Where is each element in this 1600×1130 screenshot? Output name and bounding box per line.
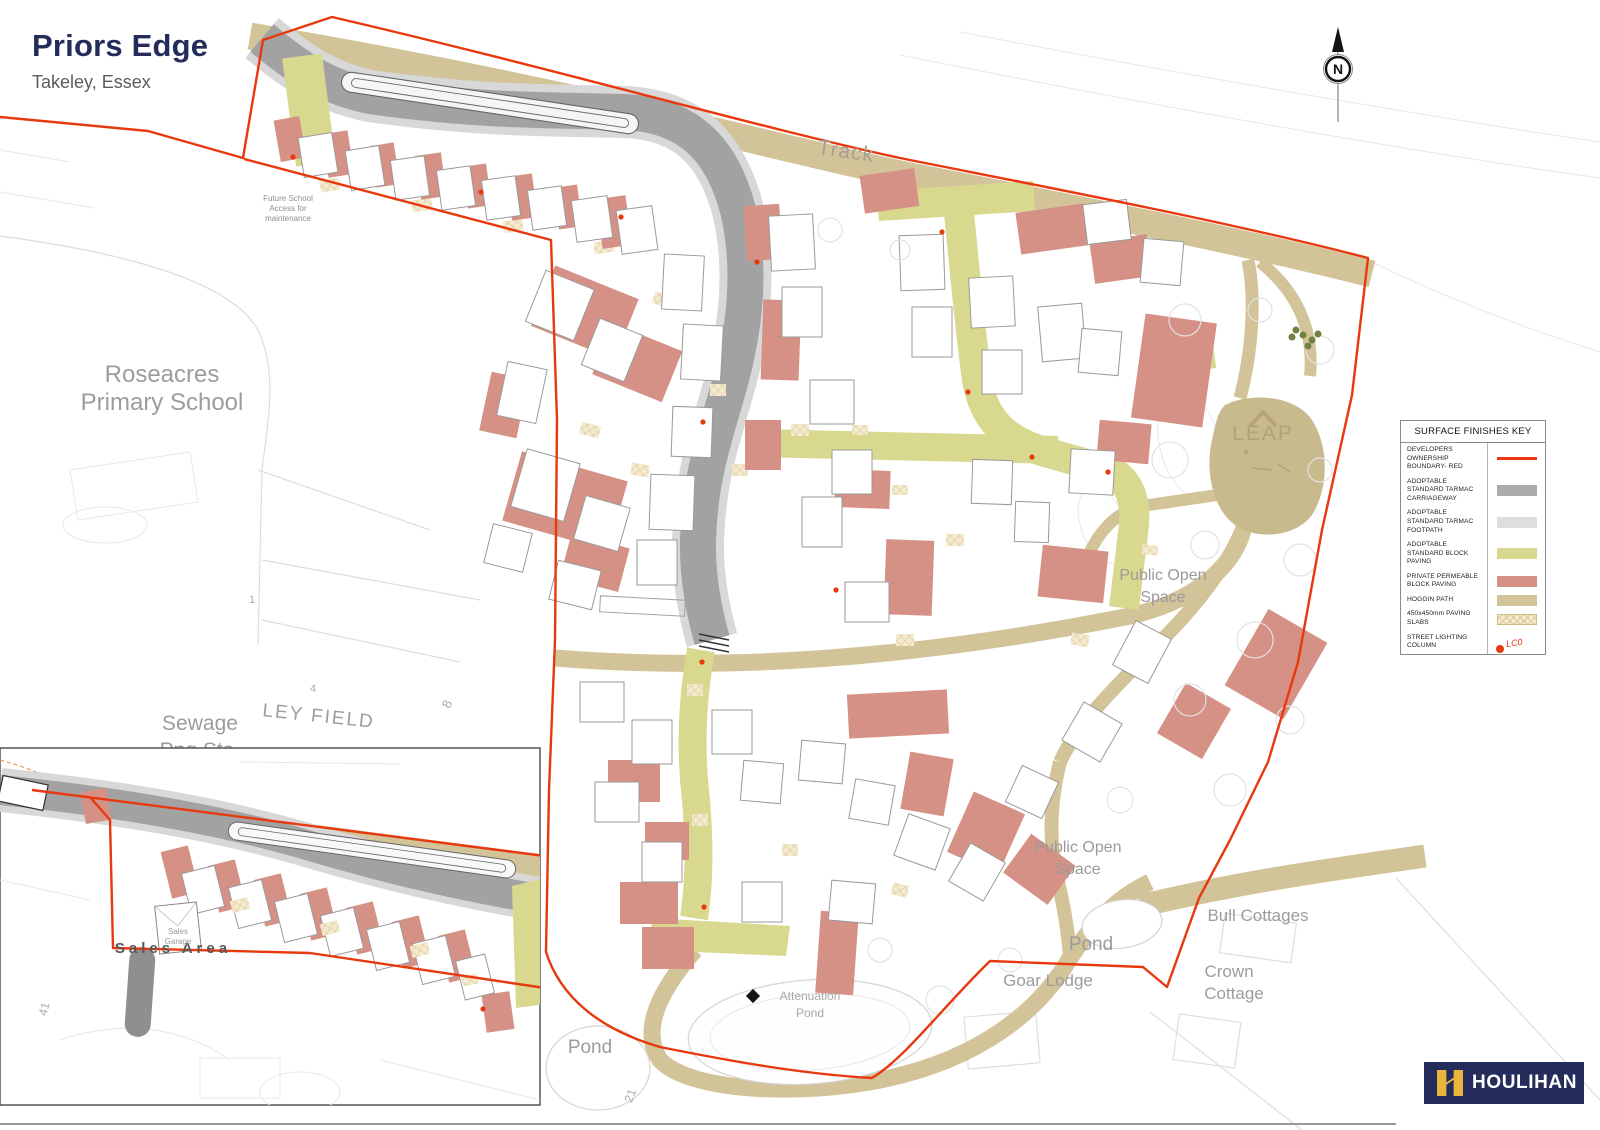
map-label: Roseacres [105, 361, 220, 388]
map-label: Cottage [1204, 984, 1264, 1003]
legend-row: ADOPTABLE STANDARD TARMAC CARRIAGEWAY [1401, 475, 1545, 507]
leap-area [1209, 397, 1324, 534]
legend-title: SURFACE FINISHES KEY [1401, 421, 1545, 443]
site-plan-drawing: SewagePng Sta [0, 0, 1600, 1130]
map-label: LEAP [1232, 422, 1294, 445]
legend-row: 450x450mm PAVING SLABS [1401, 607, 1545, 630]
legend-row: PRIVATE PERMEABLE BLOCK PAVING [1401, 570, 1545, 593]
map-label: 1 [249, 594, 255, 606]
legend-label: STREET LIGHTING COLUMN [1401, 631, 1487, 654]
legend-swatch [1487, 475, 1545, 507]
legend-label: ADOPTABLE STANDARD TARMAC FOOTPATH [1401, 506, 1487, 538]
legend-label: PRIVATE PERMEABLE BLOCK PAVING [1401, 570, 1487, 593]
legend-swatch [1487, 593, 1545, 608]
legend-label: 450x450mm PAVING SLABS [1401, 607, 1487, 630]
north-arrow: N [1320, 20, 1356, 126]
north-arrowhead [1332, 27, 1344, 52]
legend-swatch [1487, 443, 1545, 475]
map-label: LEY FIELD [261, 700, 375, 733]
map-label: Attenuation [780, 989, 841, 1003]
legend-swatch: LC0 [1487, 631, 1545, 654]
map-label: Public Open [1119, 567, 1206, 584]
legend-body: DEVELOPERS OWNERSHIP BOUNDARY- REDADOPTA… [1401, 443, 1545, 654]
legend-row: ADOPTABLE STANDARD TARMAC FOOTPATH [1401, 506, 1545, 538]
map-label: Pond [1069, 934, 1113, 955]
map-label: Sewage [162, 712, 238, 735]
map-label: Space [1055, 861, 1100, 878]
legend-label: ADOPTABLE STANDARD TARMAC CARRIAGEWAY [1401, 475, 1487, 507]
lighting-column-code: LC0 [1505, 637, 1523, 649]
map-label: Access for [269, 204, 307, 213]
map-label: Crown [1204, 962, 1253, 981]
map-label: Public Open [1034, 839, 1121, 856]
compass-n-label: N [1333, 61, 1343, 77]
map-label: Goar Lodge [1003, 971, 1093, 990]
map-label: Pond [796, 1006, 824, 1020]
inset-map [0, 748, 545, 1112]
legend-swatch [1487, 506, 1545, 538]
legend-row: HOGGIN PATH [1401, 593, 1545, 608]
map-label: Bull Cottages [1207, 906, 1308, 925]
logo-text: HOULIHAN [1472, 1072, 1577, 1094]
legend-swatch [1487, 538, 1545, 570]
legend-label: ADOPTABLE STANDARD BLOCK PAVING [1401, 538, 1487, 570]
page-title: Priors Edge [32, 28, 208, 64]
title-block: Priors Edge Takeley, Essex [32, 28, 208, 93]
houlihan-h-icon [1437, 1070, 1463, 1096]
page-subtitle: Takeley, Essex [32, 72, 208, 93]
map-label: Garage [165, 937, 192, 946]
houlihan-logo: HOULIHAN [1424, 1062, 1584, 1104]
legend-label: DEVELOPERS OWNERSHIP BOUNDARY- RED [1401, 443, 1487, 475]
site-plan-sheet: SewagePng Sta [0, 0, 1600, 1130]
legend-swatch [1487, 570, 1545, 593]
map-label: Pond [568, 1037, 612, 1058]
map-label: Future School [263, 194, 313, 203]
map-label: Space [1140, 589, 1185, 606]
legend-row: ADOPTABLE STANDARD BLOCK PAVING [1401, 538, 1545, 570]
legend-row: STREET LIGHTING COLUMNLC0 [1401, 631, 1545, 654]
map-label: Primary School [81, 389, 244, 416]
map-label: Sales [168, 927, 188, 936]
legend-row: DEVELOPERS OWNERSHIP BOUNDARY- RED [1401, 443, 1545, 475]
surface-finishes-key: SURFACE FINISHES KEY DEVELOPERS OWNERSHI… [1400, 420, 1546, 655]
legend-label: HOGGIN PATH [1401, 593, 1487, 608]
legend-swatch [1487, 607, 1545, 630]
map-label: 4 [310, 683, 316, 695]
map-label: maintenance [265, 214, 311, 223]
map-label: 8 [439, 698, 456, 711]
lighting-column-dot-icon [1496, 645, 1504, 653]
